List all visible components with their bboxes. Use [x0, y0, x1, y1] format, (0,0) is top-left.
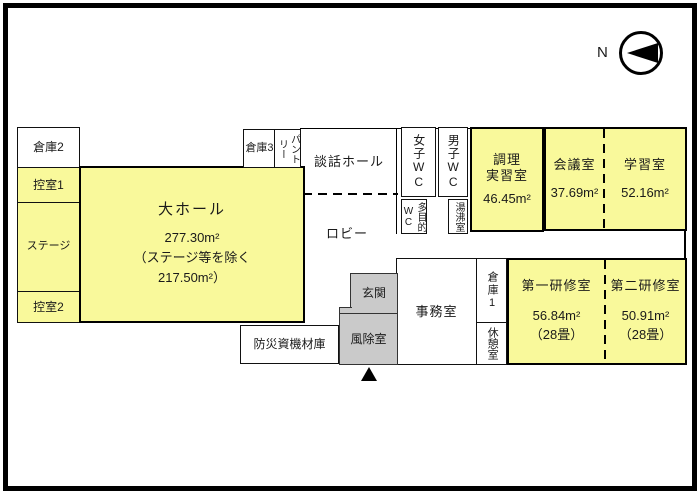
wall-lobby-right — [396, 128, 397, 234]
room-pantry: パントリー — [274, 129, 301, 168]
wall-right-connector — [684, 230, 686, 259]
room-training1-label: 第一研修室 — [521, 278, 591, 294]
entrance-marker-icon — [361, 367, 377, 381]
room-study-area: 52.16m² — [621, 185, 669, 201]
room-training-block: 第一研修室 56.84m² （28畳） 第二研修室 50.91m² （28畳） — [507, 258, 687, 365]
room-study: 学習室 52.16m² — [605, 129, 685, 229]
compass-arrow-icon — [627, 43, 658, 63]
room-storage1-label: 倉庫1 — [485, 271, 498, 311]
room-storage2: 倉庫2 — [17, 127, 80, 168]
room-main-hall-label: 大ホール — [158, 201, 226, 219]
room-storage3-label: 倉庫3 — [245, 142, 273, 155]
room-stage: ステージ — [17, 202, 80, 292]
room-office: 事務室 — [396, 258, 477, 365]
room-cooking-label1: 調理 — [493, 152, 521, 168]
room-waiting2: 控室2 — [17, 291, 80, 323]
room-multipurpose-wc: 多目的WC — [401, 199, 427, 234]
room-main-hall: 大ホール 277.30m² （ステージ等を除く 217.50m²） — [79, 166, 305, 323]
room-waiting1-label: 控室1 — [33, 178, 64, 192]
room-waiting1: 控室1 — [17, 167, 80, 203]
divider-lounge-lobby — [303, 193, 398, 195]
room-cooking-label2: 実習室 — [486, 168, 528, 184]
room-pantry-label: パントリー — [276, 131, 300, 167]
room-training2-label: 第二研修室 — [610, 278, 680, 294]
room-meeting-area: 37.69m² — [551, 185, 599, 201]
room-windbreak: 風除室 — [339, 313, 398, 365]
room-mens-wc-label: 男子WC — [446, 134, 460, 190]
room-entrance-hall: 玄関 — [350, 273, 398, 314]
room-womens-wc-label: 女子WC — [411, 134, 425, 190]
room-training1-tatami: （28畳） — [530, 325, 583, 345]
room-multipurpose-wc-label: 多目的WC — [402, 201, 426, 233]
room-training2-area: 50.91m² — [622, 306, 670, 326]
room-office-label: 事務室 — [415, 304, 457, 320]
room-disaster-storage: 防災資機材庫 — [240, 325, 339, 364]
room-windbreak-label: 風除室 — [350, 332, 386, 346]
room-lounge-hall-label: 談話ホール — [300, 149, 398, 171]
floor-plan: N 倉庫2 控室1 ステージ 控室2 大ホール 277.30m² （ステージ等を… — [0, 0, 700, 494]
room-hot-water-label: 湯沸室 — [452, 202, 464, 232]
room-training1: 第一研修室 56.84m² （28畳） — [509, 260, 604, 363]
room-study-label: 学習室 — [624, 157, 666, 173]
room-rest-label: 休憩室 — [485, 327, 498, 360]
room-main-hall-note1: （ステージ等を除く — [134, 248, 251, 268]
room-main-hall-note2: 217.50m²） — [158, 268, 226, 288]
room-storage2-label: 倉庫2 — [33, 140, 64, 154]
room-storage1: 倉庫1 — [476, 258, 507, 324]
room-meeting: 会議室 37.69m² — [546, 129, 603, 229]
room-hot-water: 湯沸室 — [448, 199, 468, 234]
room-cooking: 調理 実習室 46.45m² — [470, 127, 544, 232]
room-stage-label: ステージ — [27, 240, 71, 253]
room-storage3: 倉庫3 — [243, 129, 276, 168]
room-meeting-study-block: 会議室 37.69m² 学習室 52.16m² — [544, 127, 687, 231]
room-training1-area: 56.84m² — [533, 306, 581, 326]
room-rest: 休憩室 — [476, 322, 507, 365]
room-womens-wc: 女子WC — [401, 127, 436, 197]
compass-north-label: N — [597, 44, 608, 61]
room-entrance-hall-label: 玄関 — [362, 286, 386, 300]
room-waiting2-label: 控室2 — [33, 300, 64, 314]
room-training2: 第二研修室 50.91m² （28畳） — [606, 260, 685, 363]
room-cooking-area: 46.45m² — [483, 191, 531, 207]
room-disaster-storage-label: 防災資機材庫 — [253, 337, 325, 351]
room-meeting-label: 会議室 — [553, 157, 595, 173]
room-main-hall-area: 277.30m² — [165, 228, 220, 248]
room-mens-wc: 男子WC — [438, 127, 468, 197]
room-lobby-label: ロビー — [302, 222, 392, 242]
room-training2-tatami: （28畳） — [619, 325, 672, 345]
